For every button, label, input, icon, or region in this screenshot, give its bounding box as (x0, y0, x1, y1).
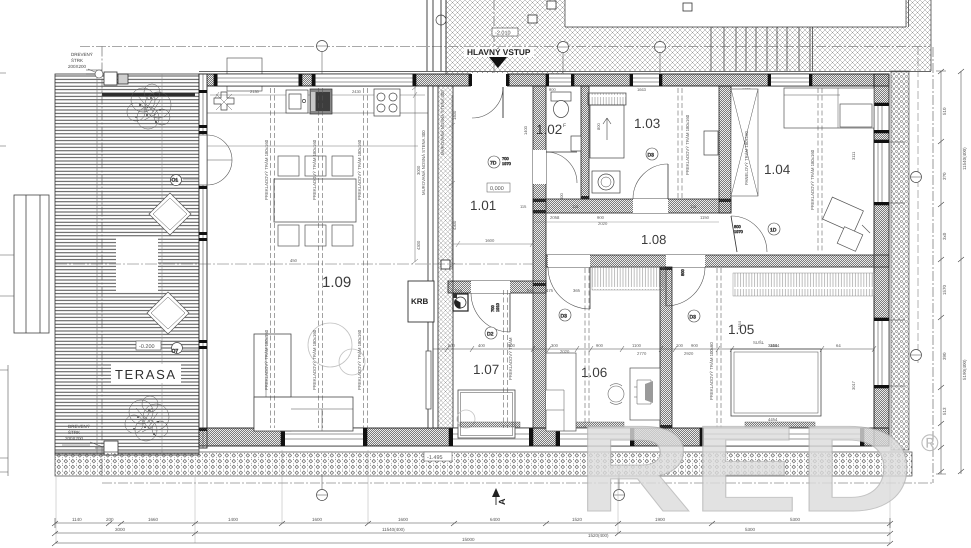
svg-text:DREVENÝ: DREVENÝ (71, 52, 93, 57)
svg-text:D3: D3 (561, 314, 568, 320)
svg-text:PREKLADOVÝ TRÁM 180x160: PREKLADOVÝ TRÁM 180x160 (312, 139, 317, 200)
svg-text:2058: 2058 (550, 215, 560, 220)
svg-text:390: 390 (942, 352, 947, 360)
svg-text:500: 500 (448, 343, 456, 348)
svg-text:4300: 4300 (416, 240, 421, 250)
svg-text:HLAVNÝ VSTUP: HLAVNÝ VSTUP (467, 47, 531, 57)
svg-text:1570: 1570 (942, 284, 947, 295)
svg-text:1600: 1600 (485, 238, 495, 243)
svg-text:2430: 2430 (352, 89, 362, 94)
svg-text:MUROVANÁ NOSNÁ STENA 300: MUROVANÁ NOSNÁ STENA 300 (440, 90, 445, 155)
svg-text:D3: D3 (648, 153, 655, 159)
svg-text:PREKLADOVÝ TRÁM 180x160: PREKLADOVÝ TRÁM 180x160 (357, 139, 362, 200)
svg-text:-0.200: -0.200 (139, 344, 155, 350)
svg-text:1660: 1660 (148, 517, 159, 522)
svg-text:SUŠL: SUŠL (753, 340, 765, 345)
svg-text:ŠTRK: ŠTRK (71, 58, 83, 63)
svg-text:475: 475 (546, 288, 554, 293)
svg-text:15000: 15000 (462, 537, 475, 542)
svg-text:1.08: 1.08 (641, 232, 666, 247)
svg-text:200X200: 200X200 (65, 436, 84, 441)
svg-text:®: ® (921, 430, 939, 457)
svg-text:PANELOVÝ TRÁM 180x160: PANELOVÝ TRÁM 180x160 (744, 131, 749, 185)
svg-text:A: A (497, 498, 507, 505)
svg-text:PREKLADOVÝ TRÁM 180x160: PREKLADOVÝ TRÁM 180x160 (312, 329, 317, 390)
svg-text:115: 115 (520, 204, 527, 209)
svg-text:200: 200 (106, 517, 114, 522)
svg-text:3111: 3111 (851, 151, 856, 160)
svg-text:3454: 3454 (770, 343, 780, 348)
svg-text:515: 515 (527, 288, 535, 293)
svg-text:115: 115 (690, 204, 697, 209)
svg-text:2020: 2020 (560, 349, 570, 354)
svg-text:-2.010: -2.010 (495, 31, 511, 37)
svg-text:PREKLADOVÝ TRÁM 180x160: PREKLADOVÝ TRÁM 180x160 (810, 149, 815, 210)
svg-text:100: 100 (676, 343, 684, 348)
svg-text:1400: 1400 (523, 125, 528, 135)
svg-text:200X200: 200X200 (68, 64, 87, 69)
svg-text:TERASA: TERASA (115, 367, 177, 382)
svg-text:1150: 1150 (700, 215, 710, 220)
svg-text:-1.495: -1.495 (427, 455, 443, 461)
svg-text:365: 365 (573, 288, 581, 293)
svg-text:3x0: 3x0 (942, 232, 947, 240)
svg-text:4300: 4300 (452, 220, 457, 230)
svg-text:O1: O1 (172, 178, 179, 184)
svg-text:1600: 1600 (398, 517, 409, 522)
svg-text:800: 800 (680, 269, 685, 276)
svg-text:ŠTRK: ŠTRK (68, 430, 80, 435)
svg-text:3?0: 3?0 (942, 172, 947, 180)
svg-text:1.09: 1.09 (322, 274, 351, 291)
svg-text:2020: 2020 (598, 221, 608, 226)
svg-text:1140: 1140 (72, 517, 82, 522)
svg-text:1970: 1970 (502, 161, 512, 166)
svg-text:PREKLADOVÝ TRÁM 180x160: PREKLADOVÝ TRÁM 180x160 (357, 329, 362, 390)
svg-text:3017: 3017 (851, 380, 856, 390)
svg-text:300: 300 (551, 343, 559, 348)
svg-text:1.04: 1.04 (764, 162, 791, 177)
svg-text:450: 450 (290, 258, 298, 263)
svg-text:1400: 1400 (452, 110, 457, 120)
svg-text:MUROVANÁ NOSNÁ STENA 300: MUROVANÁ NOSNÁ STENA 300 (421, 130, 426, 195)
svg-text:RED: RED (577, 401, 914, 538)
svg-text:PREKLADOVÝ TRÁM 180x160: PREKLADOVÝ TRÁM 180x160 (264, 139, 269, 200)
svg-text:115: 115 (572, 204, 579, 209)
svg-text:1.05: 1.05 (728, 322, 754, 337)
svg-text:11540(400): 11540(400) (382, 527, 405, 532)
svg-text:11540(400): 11540(400) (962, 147, 967, 170)
svg-text:1100: 1100 (632, 343, 642, 348)
svg-text:6400: 6400 (490, 517, 501, 522)
svg-text:2770: 2770 (637, 351, 647, 356)
svg-text:400: 400 (478, 343, 486, 348)
svg-text:PREKLADOVÝ TRÁM 180x160: PREKLADOVÝ TRÁM 180x160 (685, 114, 690, 175)
svg-text:1.02: 1.02 (536, 122, 562, 137)
svg-text:64: 64 (836, 343, 841, 348)
svg-text:1400: 1400 (228, 517, 239, 522)
svg-text:F: F (563, 123, 566, 129)
svg-text:O7: O7 (172, 349, 179, 355)
svg-text:515: 515 (455, 288, 463, 293)
svg-text:510: 510 (942, 107, 947, 115)
svg-text:900: 900 (691, 343, 699, 348)
svg-text:5190(400): 5190(400) (962, 359, 967, 380)
svg-text:D3: D3 (690, 315, 697, 321)
svg-text:PREKLADOVÝ TRÁM 180x160: PREKLADOVÝ TRÁM 180x160 (264, 329, 269, 390)
svg-text:0,000: 0,000 (490, 186, 504, 192)
svg-text:PREKLADOVÝ TRÁM 100x60: PREKLADOVÝ TRÁM 100x60 (709, 342, 714, 400)
svg-text:400: 400 (559, 193, 564, 200)
svg-text:1663: 1663 (637, 87, 647, 92)
svg-text:1.03: 1.03 (634, 116, 660, 131)
svg-text:500: 500 (508, 343, 516, 348)
svg-text:513: 513 (942, 407, 947, 415)
svg-text:7D: 7D (490, 161, 497, 167)
svg-text:900: 900 (597, 215, 605, 220)
svg-text:3000: 3000 (416, 165, 421, 175)
svg-text:800: 800 (596, 123, 601, 130)
svg-text:KRB: KRB (411, 297, 429, 306)
svg-text:2130: 2130 (250, 89, 260, 94)
svg-text:1.01: 1.01 (470, 198, 496, 213)
svg-text:D2: D2 (487, 332, 494, 338)
svg-text:3000: 3000 (115, 527, 126, 532)
svg-text:1.07: 1.07 (473, 362, 499, 377)
svg-text:1910: 1910 (495, 302, 500, 312)
svg-text:DREVENÝ: DREVENÝ (68, 424, 90, 429)
svg-text:1970: 1970 (734, 229, 744, 234)
svg-text:1D: 1D (770, 228, 777, 234)
svg-text:1600: 1600 (312, 517, 323, 522)
svg-text:900: 900 (549, 87, 556, 92)
svg-text:900: 900 (596, 343, 604, 348)
svg-text:2920: 2920 (684, 351, 694, 356)
